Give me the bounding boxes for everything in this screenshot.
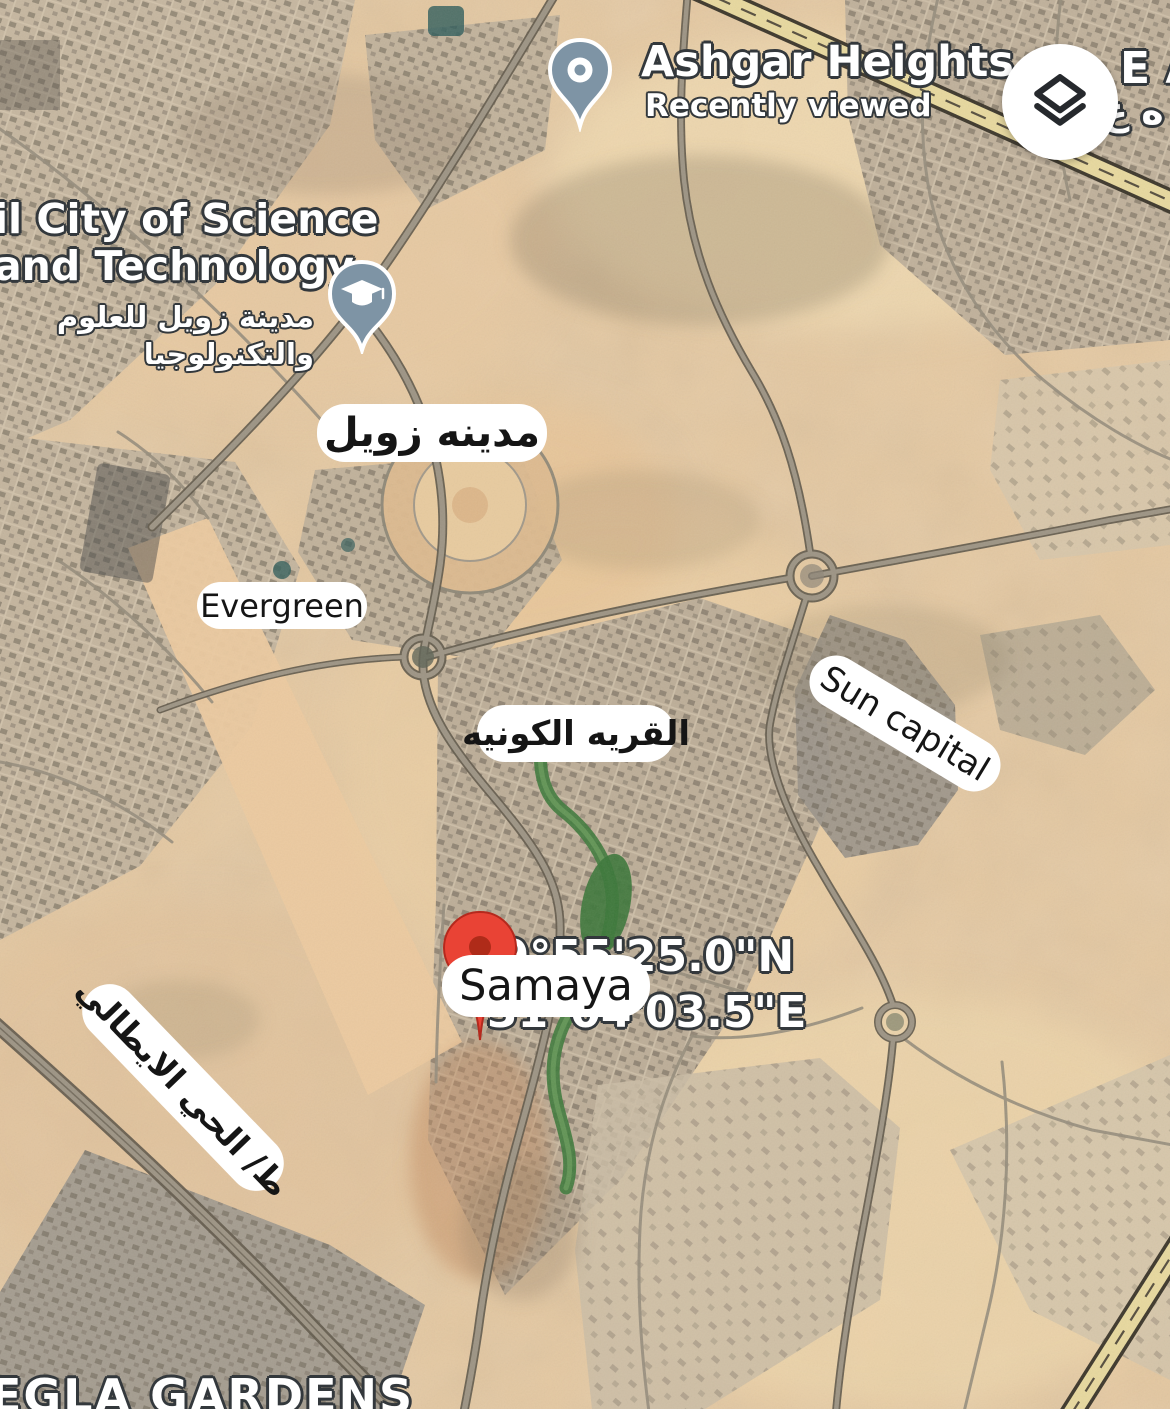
annotation-samaya: Samaya: [442, 955, 650, 1017]
edge-label-top-right: E A: [1120, 46, 1170, 92]
poi-title-ashgar-heights[interactable]: Ashgar Heights: [641, 40, 1014, 85]
poi-title-science-line1: il City of Science: [0, 198, 314, 241]
poi-subtitle-science-ar2: والتكنولوجيا: [0, 339, 314, 369]
graduation-cap-icon: [326, 258, 398, 354]
annotation-zewail-city: مدينه زويل: [317, 404, 547, 462]
poi-ashgar-heights[interactable]: [545, 36, 615, 136]
poi-science-city-pin[interactable]: [326, 258, 398, 358]
map-pin-icon: [545, 36, 615, 132]
layers-button[interactable]: [1002, 44, 1118, 160]
annotation-cosmic-village: القريه الكونيه: [477, 705, 675, 762]
layers-icon: [1029, 71, 1091, 133]
annotation-evergreen: Evergreen: [197, 582, 367, 629]
poi-subtitle-science-ar1: مدينة زويل للعلوم: [0, 302, 314, 332]
edge-label-district: EGLA GARDENS: [0, 1372, 414, 1409]
map-viewport[interactable]: Ashgar Heights Recently viewed E A ه ع i…: [0, 0, 1170, 1409]
poi-science-city[interactable]: il City of Science and Technology مدينة …: [0, 198, 314, 369]
poi-subtitle-recently-viewed: Recently viewed: [645, 90, 932, 123]
poi-title-science-line2: and Technology: [0, 245, 314, 288]
